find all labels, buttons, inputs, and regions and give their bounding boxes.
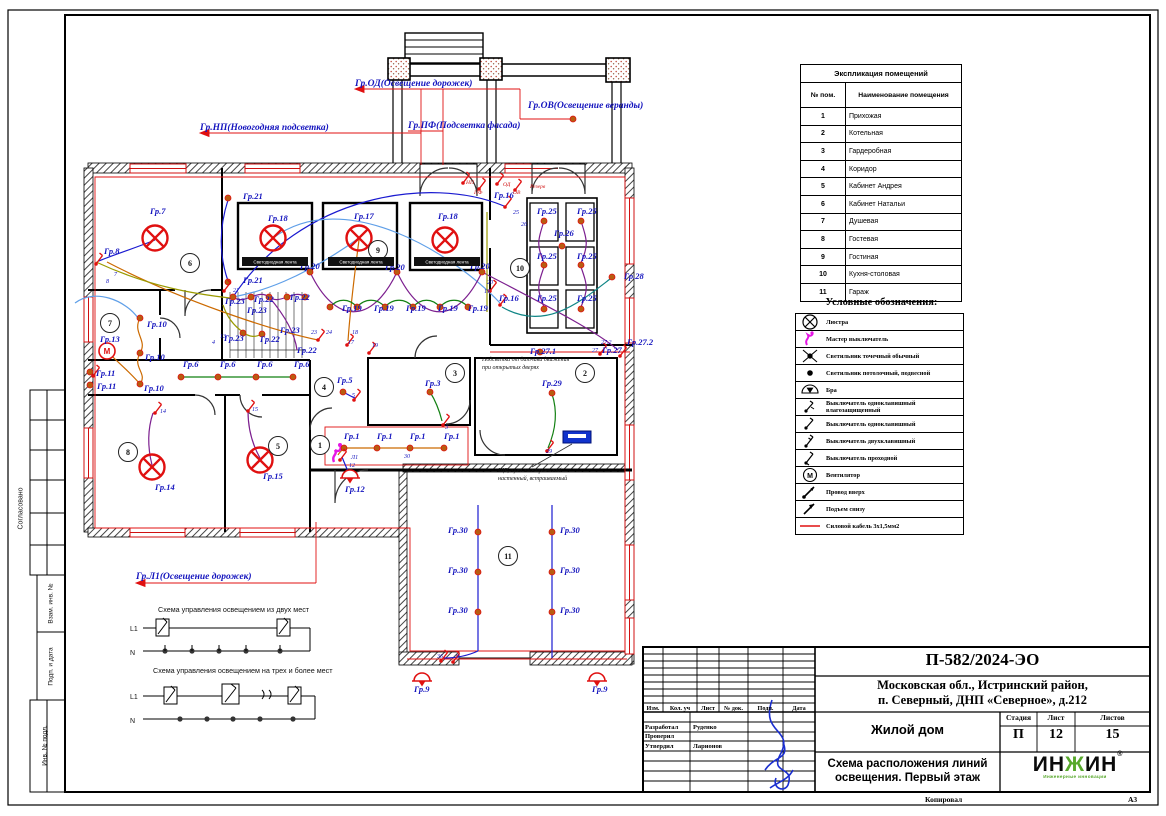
room-name: Кабинет Натальи [846,195,962,213]
plan-label: Гр.30 [447,565,469,575]
legend-item: Люстра [796,314,963,331]
explication-row: 4Коридор [801,160,962,178]
plan-label: Гр.25 [576,251,598,261]
plan-label: Гр.23 [223,333,245,343]
plan-label: Гр.27 [601,345,623,355]
sheet-value: 12 [1037,727,1075,743]
plan-label: 17 [348,340,355,346]
ceiling-light-symbol [441,445,447,451]
explication-title: Экспликация помещений [801,65,962,83]
room-number-2: 2 [576,364,595,383]
legend-item-label: Мастер выключатель [823,335,963,344]
sheet-label: Лист [1037,713,1075,722]
plan-label: Гр.1 [409,431,426,441]
plan-label: Гр.19 [341,303,363,313]
plan-label: Гр.25 [536,251,558,261]
ceiling-light-symbol [290,374,296,380]
switch-symbol [316,329,324,342]
room-number: 9 [801,248,846,266]
ceiling-light-symbol [475,529,481,535]
legend-item-label: Выключатель одноклавишный влагозащищенны… [823,399,963,415]
legend-item: Силовой кабель 3х1,5мм2 [796,518,963,534]
ceiling-light-symbol [475,569,481,575]
svg-text:Светодиодная лента: Светодиодная лента [339,260,383,265]
plan-label: Гр.5 [336,375,353,385]
ceiling-light-symbol [215,374,221,380]
plan-label: 3 [444,425,448,431]
room-number-6: 6 [181,254,200,273]
ceiling-light-symbol [549,609,555,615]
porch-column [606,58,630,82]
feeder-label: Гр.ОД(Освещение дорожек) [354,78,472,89]
plan-label: Гр.19 [373,303,395,313]
ceiling-light-symbol [137,381,143,387]
ceiling-light-symbol [559,243,565,249]
legend-item: Выключатель одноклавишный [796,416,963,433]
role-approved: Утвердил [645,743,674,750]
plan-label: 21 [233,288,239,294]
plan-label: Гр.23 [246,305,268,315]
ceiling-light-symbol [578,262,584,268]
plan-label: Гр.6 [219,359,236,369]
feeder-label: Гр.НП(Новогодняя подсветка) [199,122,329,133]
plan-label: Гр.1 [443,431,460,441]
plan-label: Гр.19 [437,303,459,313]
ceiling-light-symbol [407,445,413,451]
plan-label: ОД [503,182,511,188]
plan-note: при открытых дверях [482,364,539,371]
plan-label: Гр.30 [447,525,469,535]
room-number-7: 7 [101,314,120,333]
plan-label: Гр.22 [289,292,311,302]
explication-col-name: Наименование помещения [846,83,962,108]
stamp-approved: Согласовано [18,474,25,544]
plan-label: Гр.21 [242,275,263,285]
plan-label: Гр.10 [146,319,168,329]
ceiling-light-symbol [225,195,231,201]
electrical-panel-symbol [563,431,591,443]
plan-label: 24 [326,329,332,336]
plan-label: Гр.18 [267,213,289,223]
col-data: Дата [783,705,815,712]
plan-label: 19 [372,343,378,349]
svg-text:5: 5 [276,442,280,451]
explication-row: 9Гостиная [801,248,962,266]
chandelier-icon [796,314,823,330]
role-developed: Разработал [645,724,678,731]
format-label: А3 [1128,795,1137,804]
legend-item-label: Выключатель одноклавишный [823,420,963,429]
plan-label: Гр.11 [96,381,116,391]
porch-column [388,58,410,80]
plan-label: Гр.27.1 [529,346,556,356]
svg-text:2: 2 [583,369,587,378]
plan-label: Гр.19 [405,303,427,313]
plan-note: Подсветка от датчика движения [481,356,570,363]
svg-text:1: 1 [318,441,322,450]
plan-label: Гр.30 [447,605,469,615]
room-name: Коридор [846,160,962,178]
room-name: Душевая [846,213,962,231]
ceiling-light-symbol [427,389,433,395]
room-number: 8 [801,231,846,249]
ceiling-light-symbol [178,374,184,380]
legend-item: Светильник потолочный, подвесной [796,365,963,382]
plan-label: 30 [403,454,410,460]
plan-label: 15 [252,407,258,413]
legend-item: Светильник точечный обычный [796,348,963,365]
svg-text:4: 4 [322,383,326,392]
chandelier-symbol [261,226,286,251]
plan-label: ОВ [513,190,521,196]
plan-label: Гр.21 [242,191,263,201]
room-number: 5 [801,178,846,196]
plan-label: Гр.25 [536,206,558,216]
legend-item-label: Бра [823,386,963,395]
plan-label: 27 [592,348,599,354]
svg-text:8: 8 [126,448,130,457]
project-address: Московская обл., Истринский район, п. Се… [815,678,1150,708]
svg-text:6: 6 [188,259,192,268]
ceiling-light-symbol [374,445,380,451]
plan-label: Гр.3 [424,378,441,388]
svg-text:M: M [104,347,111,356]
plan-label: 36 [436,654,443,660]
col-list: Лист [697,705,719,712]
plan-note: ЩР, щит электрический [497,467,562,474]
plan-label: 25 [513,210,519,216]
room-number: 3 [801,143,846,161]
plan-label: Гр.19 [467,303,489,313]
legend-item: Выключатель одноклавишный влагозащищенны… [796,399,963,416]
chandelier-symbol [143,226,168,251]
sheets-value: 15 [1075,727,1150,743]
plan-label: Резерв [529,184,546,190]
svg-text:N: N [130,650,135,657]
col-kol: Кол. уч [663,705,697,712]
ceiling-light-symbol [549,569,555,575]
stamp-vzam: Взам. инв. № [48,569,55,639]
logo-text: ИНЖИН [1033,753,1118,776]
col-izm: Изм. [643,705,663,712]
plan-label: Гр.30 [559,565,581,575]
plan-label: Гр.23 [224,296,246,306]
legend-item-label: Выключатель проходной [823,454,963,463]
plan-label: Гр.27.2 [626,337,654,347]
plan-label: Гр.8 [103,246,120,256]
pendant-light-icon [796,365,823,381]
ceiling-light-symbol [549,390,555,396]
document-number: П-582/2024-ЭО [815,650,1150,670]
explication-row: 10Кухня-столовая [801,266,962,284]
room-number: 6 [801,195,846,213]
plan-label: 9 [456,654,459,660]
plan-label: 13 [220,334,226,340]
plan-label: 23 [311,330,317,336]
stamp-inv: Инв. № подл. [42,711,49,781]
room-name: Котельная [846,125,962,143]
plan-label: Гр.9 [591,684,608,694]
chandelier-symbol [347,226,372,251]
room-number-11: 11 [499,547,518,566]
col-doc: № док. [719,705,748,712]
plan-label: Гр.6 [182,359,199,369]
drawing-title: Схема расположения линий освещения. Перв… [817,757,998,785]
chandelier-symbol [140,455,165,480]
ceiling-light-symbol [327,304,333,310]
plan-label: 26 [521,222,527,228]
room-number: 10 [801,266,846,284]
room-number-4: 4 [315,378,334,397]
porch-column [480,58,502,80]
chandelier-symbol [433,228,458,253]
room-name: Гостевая [846,231,962,249]
plan-label: Гр.14 [154,482,175,492]
plan-label: 12 [349,463,355,469]
rise-from-below-icon [796,501,823,517]
sconce-icon [796,382,823,398]
svg-text:10: 10 [516,264,524,273]
plan-label: 18 [352,330,358,336]
room-number-9: 9 [369,241,388,260]
ceiling-light-symbol [549,529,555,535]
legend-title: Условные обозначения: [799,297,964,308]
role-developed-name: Руденко [693,724,717,731]
stage-value: П [1000,727,1037,743]
fan-symbol: M [99,343,115,359]
plan-label: ПФ [473,190,483,196]
room-number: 1 [801,108,846,126]
legend-item: Провод вверх [796,484,963,501]
svg-text:Светодиодная лента: Светодиодная лента [253,260,297,265]
role-approved-name: Ларионов [693,743,722,750]
plan-label: Гр.11 [95,368,115,378]
ceiling-light-symbol [87,369,93,375]
legend-item: MВентилятор [796,467,963,484]
room-name: Прихожая [846,108,962,126]
switch-pass-icon [796,450,823,466]
svg-text:9: 9 [376,246,380,255]
legend-item-label: Подъем снизу [823,505,963,514]
ceiling-light-symbol [541,306,547,312]
plan-label: Гр.1 [343,431,360,441]
plan-label: 19 [484,289,490,295]
copied-by-label: Копировал [925,795,962,804]
feeder-label: Гр.ПФ(Подсветка фасада) [407,120,520,131]
drawing-sheet: M1234567891011 Гр.7Гр.8Гр.21Гр.21Гр.18Гр… [0,0,1166,816]
plan-label: Гр.16 [498,293,520,303]
ceiling-light-symbol [340,389,346,395]
explication-row: 2Котельная [801,125,962,143]
plan-label: 8 [106,279,109,285]
plan-label: НП [465,180,475,186]
legend-item-label: Вентилятор [823,471,963,480]
plan-label: Гр.25 [576,206,598,216]
wire-up-icon [796,484,823,500]
veranda [388,33,630,163]
svg-text:7: 7 [108,319,112,328]
feeder-label: Гр.ОВ(Освещение веранды) [527,100,643,111]
ceiling-light-symbol [578,306,584,312]
plan-label: Гр.18 [437,211,459,221]
plan-label: Гр.7 [149,206,166,216]
switch-symbol [477,178,485,191]
plan-note: настенный, встраиваемый [498,475,567,482]
spot-light-icon [796,348,823,364]
switch-2gang-icon [796,433,823,449]
plan-label: Гр.28 [623,271,645,281]
legend-item: Выключатель двухклавишный [796,433,963,450]
led-strip-bar: Светодиодная лента [242,257,308,266]
ceiling-light-symbol [475,609,481,615]
ceiling-light-symbol [578,218,584,224]
legend-item-label: Провод вверх [823,488,963,497]
ceiling-light-symbol [541,218,547,224]
plan-label: Гр.26 [553,228,575,238]
room-number-3: 3 [446,364,465,383]
control-schemes: Схема управления освещением из двух мест… [130,605,333,725]
scheme-three-places-title: Схема управления освещением на трех и бо… [153,666,333,675]
stage-label: Стадия [1000,713,1037,722]
sheets-label: Листов [1075,713,1150,722]
explication-col-num: № пом. [801,83,846,108]
room-number-10: 10 [511,259,530,278]
plan-label: 20 [487,280,493,286]
plan-label: Гр.29 [541,378,563,388]
svg-text:3: 3 [453,369,457,378]
explication-row: 6Кабинет Натальи [801,195,962,213]
room-name: Кухня-столовая [846,266,962,284]
scheme-two-places-title: Схема управления освещением из двух мест [158,605,310,614]
plan-label: Гр.6 [256,359,273,369]
legend: ЛюстраМастер выключательСветильник точеч… [795,313,964,535]
ceiling-light-symbol [570,116,576,122]
stamp-podp: Подп. и дата [48,632,55,702]
plan-label: Гр.15 [262,471,284,481]
ceiling-light-symbol [253,374,259,380]
feeder-label: Гр.Л1(Освещение дорожек) [135,571,252,582]
plan-label: Гр.17 [353,211,375,221]
svg-text:L1: L1 [130,626,138,633]
room-name: Гардеробная [846,143,962,161]
ceiling-light-symbol [541,262,547,268]
room-number: 7 [801,213,846,231]
plan-label: Гр.1 [376,431,393,441]
room-number-8: 8 [119,443,138,462]
svg-text:L1: L1 [130,694,138,701]
led-strip-bar: Светодиодная лента [328,257,394,266]
explication-row: 3Гардеробная [801,143,962,161]
plan-label: Л1 [350,455,358,461]
role-checked: Проверил [645,733,674,740]
legend-item: Бра [796,382,963,399]
legend-item-label: Силовой кабель 3х1,5мм2 [823,522,963,531]
explication-row: 8Гостевая [801,231,962,249]
plan-label: Гр.6 [293,359,310,369]
plan-label: 29 [546,449,552,455]
legend-item-label: Выключатель двухклавишный [823,437,963,446]
plan-label: Гр.12 [344,484,366,494]
svg-text:11: 11 [504,552,512,561]
plan-label: Гр.25 [536,293,558,303]
plan-symbols: M1234567891011 [87,116,627,687]
legend-item-label: Люстра [823,318,963,327]
room-number-5: 5 [269,437,288,456]
ceiling-light-symbol [609,274,615,280]
master-switch-icon [796,331,823,347]
ceiling-light-symbol [137,315,143,321]
company-logo: ИНЖИН® Инженерные инновации [1005,753,1145,779]
chandelier-symbol [248,448,273,473]
fan-icon: M [796,467,823,483]
power-cable-icon [796,518,823,534]
explication-row: 7Душевая [801,213,962,231]
plan-label: Гр.30 [559,525,581,535]
plan-label: Гр.13 [99,334,121,344]
object-name: Жилой дом [817,722,998,737]
plan-label: Гр.16 [493,190,515,200]
plan-label: Гр.22 [259,334,281,344]
plan-label: Гр.25 [576,293,598,303]
plan-label: Гр.9 [413,684,430,694]
legend-item: Выключатель проходной [796,450,963,467]
plan-label: 27.2 [601,340,612,346]
room-number-1: 1 [311,436,330,455]
room-number: 4 [801,160,846,178]
legend-item: Подъем снизу [796,501,963,518]
ceiling-light-symbol [137,350,143,356]
explication-row: 5Кабинет Андрея [801,178,962,196]
svg-text:Светодиодная лента: Светодиодная лента [425,260,469,265]
svg-text:M: M [807,473,813,480]
switch-1gang-wp-icon [796,399,823,415]
svg-text:N: N [130,718,135,725]
room-explication-table: Экспликация помещений № пом. Наименовани… [800,64,962,302]
plan-label: 7 [114,272,118,278]
switch-1gang-icon [796,416,823,432]
signature [765,700,793,789]
plan-label: Гр.10 [144,352,166,362]
plan-label: Гр.10 [143,383,165,393]
plan-label: 5 [352,393,355,399]
legend-item-label: Светильник точечный обычный [823,352,963,361]
led-strip-bar: Светодиодная лента [414,257,480,266]
plan-label: 4 [212,339,215,346]
room-name: Кабинет Андрея [846,178,962,196]
col-podp: Подп. [748,705,783,712]
legend-item-label: Светильник потолочный, подвесной [823,369,963,378]
room-number: 2 [801,125,846,143]
plan-label: Гр.23 [279,325,301,335]
plan-label: Гр.30 [559,605,581,615]
legend-item: Мастер выключатель [796,331,963,348]
plan-label: Гр.22 [296,345,318,355]
plan-label: 14 [160,408,166,415]
room-name: Гостиная [846,248,962,266]
plan-label: Гр.22 [253,294,275,304]
explication-row: 1Прихожая [801,108,962,126]
ceiling-light-symbol [87,382,93,388]
